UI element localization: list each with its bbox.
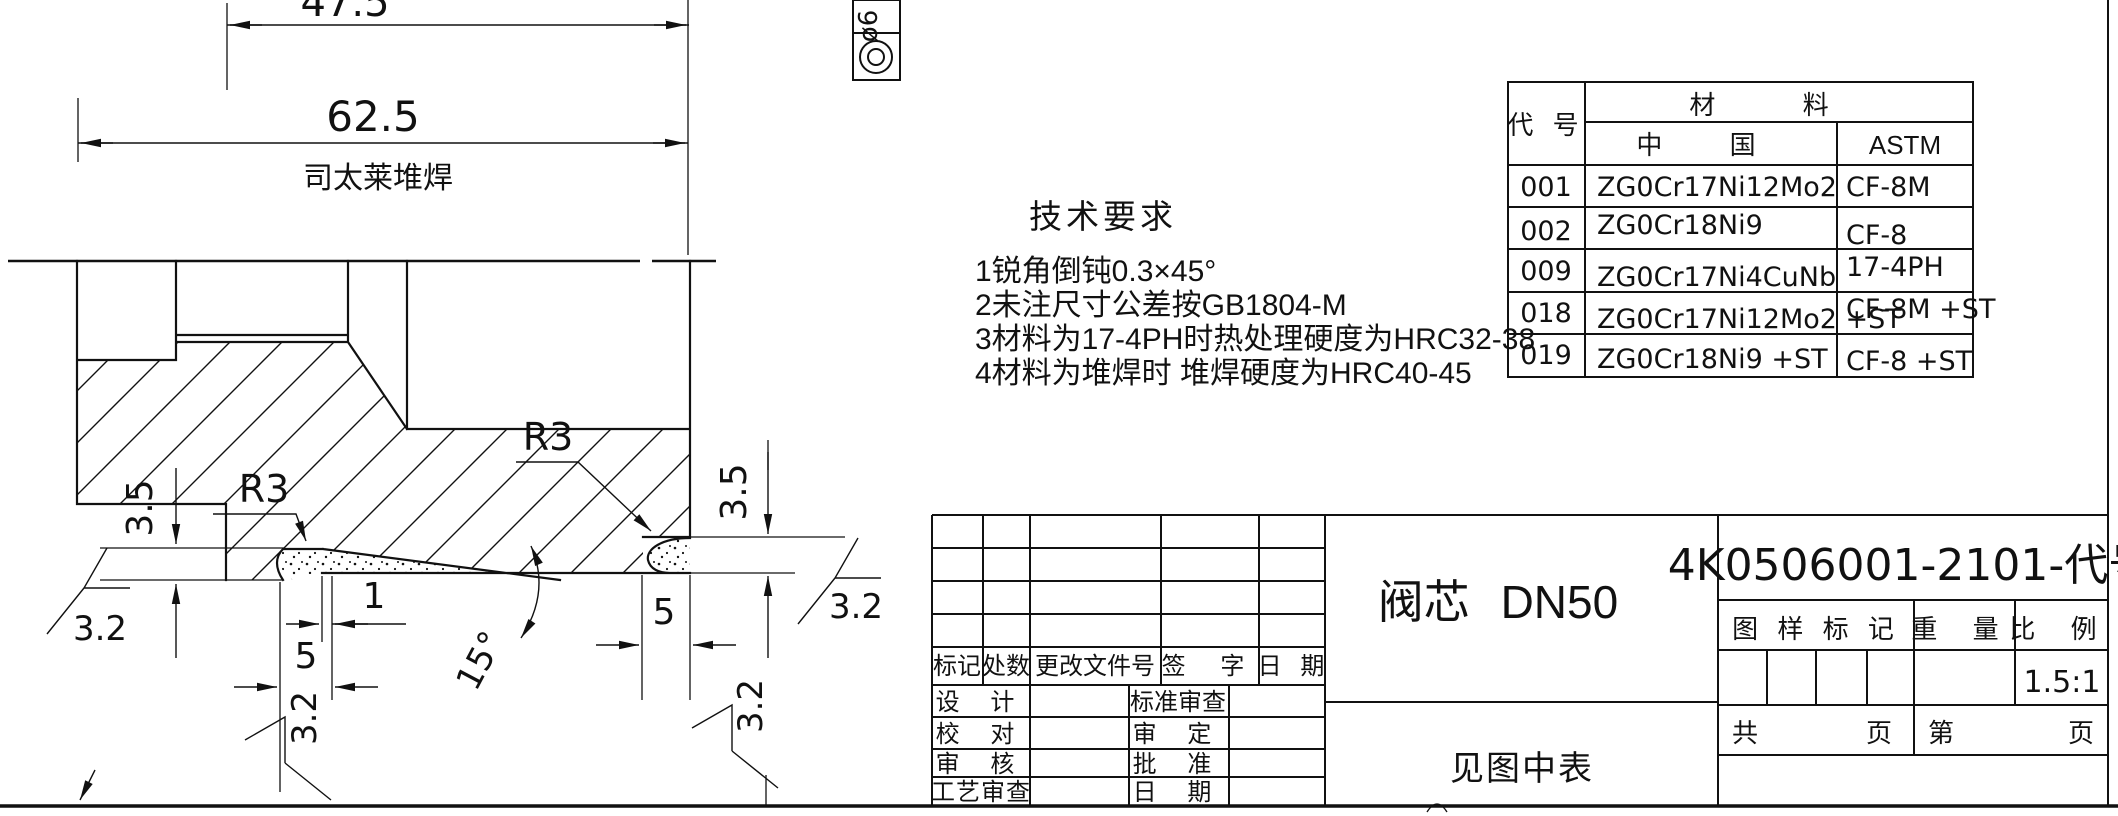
materials-col-astm: ASTM bbox=[1869, 130, 1941, 160]
role-process: 工艺审查 bbox=[931, 779, 1031, 806]
role-design: 设 计 bbox=[936, 689, 1027, 716]
dim-r3-left-value: R3 bbox=[239, 467, 290, 511]
sheets-page-label: 页 bbox=[1866, 718, 1892, 748]
weld-note-label: 司太莱堆焊 bbox=[303, 162, 453, 195]
dim-5-left-value: 5 bbox=[295, 636, 318, 677]
tech-req-line-4: 4材料为堆焊时 堆焊硬度为HRC40-45 bbox=[975, 357, 1472, 390]
part-name: 阀芯 DN50 bbox=[1378, 576, 1618, 628]
materials-row-019: 019 ZG0Cr18Ni9 +ST CF-8 +ST bbox=[1520, 340, 1972, 377]
roughness-upper-right: 3.2 bbox=[798, 538, 883, 627]
materials-col-material: 材 料 bbox=[1689, 90, 1868, 120]
rev-sign-label: 签 字 bbox=[1162, 653, 1259, 680]
materials-table: 代 号 材 料 中 国 ASTM 001 ZG0Cr17Ni12Mo2 CF-8… bbox=[1507, 82, 1996, 377]
role-date: 日 期 bbox=[1133, 779, 1224, 806]
sheet-no-label: 第 bbox=[1928, 718, 1954, 748]
tech-req-line-3: 3材料为17-4PH时热处理硬度为HRC32-38 bbox=[975, 323, 1535, 356]
drawing-number: 4K0506001-2101-代号 bbox=[1668, 540, 2118, 591]
material-ref: 见图中表 bbox=[1450, 750, 1594, 788]
cell-code: 001 bbox=[1520, 172, 1572, 203]
roughness-bottom-right: 3.2 bbox=[692, 679, 778, 788]
sheet-page-label2: 页 bbox=[2068, 718, 2094, 748]
cell-astm: 17-4PH bbox=[1846, 252, 1944, 283]
feature-control-frame: ø6 bbox=[853, 0, 900, 80]
scale-header: 比 例 bbox=[2009, 614, 2110, 644]
cell-code: 018 bbox=[1520, 298, 1572, 329]
stamp-header: 图 样 标 记 bbox=[1732, 614, 1900, 644]
materials-row-018: 018 ZG0Cr17Ni12Mo2 +ST CF-8M +ST bbox=[1520, 294, 1996, 335]
dim-62-5: 62.5 bbox=[78, 92, 688, 143]
roughness-left: 3.2 bbox=[47, 548, 130, 649]
role-approve: 批 准 bbox=[1133, 751, 1224, 778]
dim-5-right-value: 5 bbox=[653, 592, 676, 633]
cell-china: ZG0Cr17Ni4CuNb bbox=[1597, 262, 1836, 293]
revision-header-row: 标记 处数 更改文件号 签 字 日 期 bbox=[933, 653, 1330, 680]
roughness-bottom-left-value: 3.2 bbox=[285, 691, 325, 745]
dim-5-left: 5 bbox=[234, 582, 378, 792]
cell-astm: CF-8M +ST bbox=[1846, 294, 1996, 325]
cell-code: 009 bbox=[1520, 256, 1572, 287]
materials-row-009: 009 ZG0Cr17Ni4CuNb 17-4PH bbox=[1520, 252, 1944, 293]
dim-47-5-value: 47.5 bbox=[300, 0, 389, 26]
roughness-bottom-left: 3.2 bbox=[245, 691, 331, 800]
rev-date-label: 日 期 bbox=[1258, 653, 1331, 680]
dim-3-5-left-value: 3.5 bbox=[120, 479, 161, 536]
cell-astm: CF-8 +ST bbox=[1846, 346, 1973, 377]
dim-r3-right-value: R3 bbox=[523, 415, 574, 459]
technical-requirements: 技术要求 1锐角倒钝0.3×45° 2未注尺寸公差按GB1804-M 3材料为1… bbox=[975, 198, 1535, 390]
cell-code: 002 bbox=[1520, 216, 1572, 247]
materials-col-china: 中 国 bbox=[1636, 130, 1785, 160]
dim-5-right: 5 bbox=[596, 575, 736, 700]
rev-mark-label: 标记 bbox=[933, 653, 981, 680]
dim-1-value: 1 bbox=[363, 576, 386, 617]
cell-china: ZG0Cr17Ni12Mo2 bbox=[1597, 172, 1837, 203]
part-section-view bbox=[8, 240, 720, 600]
scale-value: 1.5:1 bbox=[2024, 665, 2101, 700]
role-std-review: 标准审查 bbox=[1130, 689, 1226, 716]
rev-qty-label: 处数 bbox=[982, 653, 1030, 680]
dim-3-5-right: 3.5 bbox=[690, 440, 845, 658]
section-hatching bbox=[60, 240, 720, 600]
datum-diameter-label: ø6 bbox=[854, 10, 884, 42]
signature-rows: 设 计 标准审查 校 对 审 定 审 核 批 准 工艺审查 日 期 bbox=[931, 689, 1226, 806]
role-check: 校 对 bbox=[936, 721, 1027, 748]
materials-row-002: 002 ZG0Cr18Ni9 CF-8 bbox=[1520, 210, 1907, 251]
engineering-drawing-sheet: 47.5 62.5 司太莱堆焊 3.5 3.5 R3 bbox=[0, 0, 2118, 816]
roughness-bottom-right-value: 3.2 bbox=[731, 679, 771, 733]
stellite-weld-right bbox=[648, 538, 690, 573]
materials-row-001: 001 ZG0Cr17Ni12Mo2 CF-8M bbox=[1520, 172, 1930, 203]
title-block: 标记 处数 更改文件号 签 字 日 期 设 计 标准审查 校 对 审 定 审 核… bbox=[931, 515, 2118, 806]
weight-header: 重 量 bbox=[1911, 614, 2012, 644]
sheets-total-label: 共 bbox=[1732, 718, 1758, 748]
role-review: 审 核 bbox=[936, 751, 1027, 778]
roughness-left-value: 3.2 bbox=[73, 609, 127, 649]
role-ratify: 审 定 bbox=[1133, 721, 1224, 748]
dim-angle-15-value: 15° bbox=[448, 625, 512, 697]
materials-col-code: 代 号 bbox=[1507, 110, 1584, 140]
cell-astm: CF-8 bbox=[1846, 220, 1907, 251]
cell-astm: CF-8M bbox=[1846, 172, 1931, 203]
tech-req-line-1: 1锐角倒钝0.3×45° bbox=[975, 255, 1216, 288]
cell-code: 019 bbox=[1520, 340, 1572, 371]
cell-china: ZG0Cr18Ni9 +ST bbox=[1597, 344, 1828, 375]
roughness-upper-right-value: 3.2 bbox=[829, 587, 883, 627]
rev-doc-label: 更改文件号 bbox=[1035, 653, 1155, 680]
tech-req-title: 技术要求 bbox=[1029, 198, 1177, 235]
dim-62-5-value: 62.5 bbox=[326, 92, 420, 141]
dim-3-5-right-value: 3.5 bbox=[714, 463, 755, 520]
cell-china: ZG0Cr18Ni9 bbox=[1597, 210, 1763, 241]
tech-req-line-2: 2未注尺寸公差按GB1804-M bbox=[975, 289, 1347, 322]
concentricity-icon bbox=[860, 41, 892, 73]
